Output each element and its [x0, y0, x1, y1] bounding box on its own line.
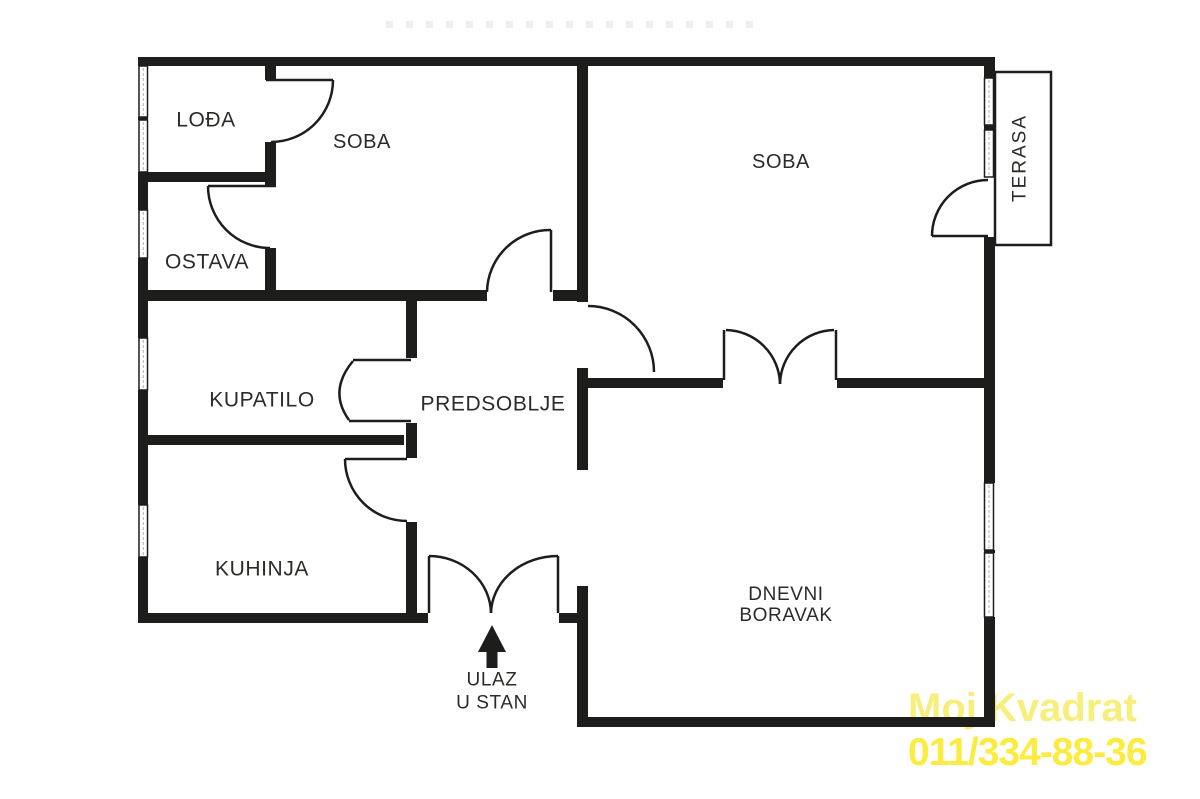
wall: [138, 613, 428, 623]
wall: [406, 423, 417, 458]
wall: [577, 586, 588, 717]
wall: [138, 435, 404, 445]
wall: [138, 172, 276, 182]
door-ostava: [208, 186, 276, 248]
door-kuhinja: [345, 459, 407, 521]
double-door-soba2-dnevni: [724, 330, 836, 384]
wall: [138, 57, 995, 66]
wall: [138, 290, 487, 301]
entrance-label-line2: U STAN: [456, 694, 528, 715]
door-soba2: [588, 306, 654, 372]
wall: [577, 378, 723, 388]
room-label-kuhinja: KUHINJA: [215, 557, 309, 580]
room-label-ostava: OSTAVA: [165, 250, 249, 273]
room-label-terasa: TERASA: [1011, 114, 1032, 202]
wall: [138, 390, 148, 505]
doors: [208, 80, 988, 613]
wall: [984, 237, 995, 483]
double-door-entrance: [429, 556, 558, 613]
wall: [837, 378, 995, 388]
wall: [138, 57, 148, 66]
door-terasa: [932, 180, 988, 236]
room-label-dnevni-line1: DNEVNI: [739, 584, 832, 605]
room-label-dnevni-boravak: DNEVNI BORAVAK: [739, 584, 832, 626]
door-lodja: [266, 80, 333, 142]
wall: [577, 57, 588, 302]
entrance-arrow-icon: [478, 625, 506, 668]
wall: [984, 617, 995, 727]
room-label-predsoblje: PREDSOBLJE: [421, 392, 566, 415]
door-kupatilo: [339, 360, 411, 421]
room-label-soba-2: SOBA: [752, 151, 810, 173]
wall: [577, 368, 588, 470]
wall: [265, 66, 276, 80]
wall: [265, 248, 276, 301]
room-label-kupatilo: KUPATILO: [209, 388, 315, 411]
floor-plan-image: Moj Kvadrat 011/334-88-36: [0, 0, 1200, 799]
room-label-soba-1: SOBA: [333, 131, 391, 153]
wall: [406, 522, 417, 613]
room-label-dnevni-line2: BORAVAK: [739, 605, 832, 626]
wall: [984, 57, 995, 78]
door-soba1: [487, 230, 551, 292]
wall: [577, 717, 995, 727]
room-label-lodja: LOĐA: [176, 108, 236, 131]
wall: [265, 142, 276, 186]
wall: [406, 301, 417, 358]
entrance-label-line1: ULAZ: [467, 671, 518, 692]
